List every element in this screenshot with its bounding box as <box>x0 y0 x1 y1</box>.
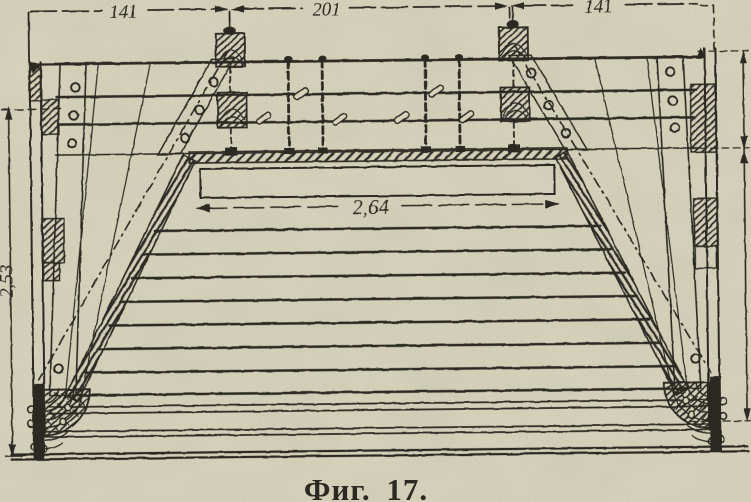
svg-text:141: 141 <box>109 2 138 23</box>
svg-text:Фиг. 17.: Фиг. 17. <box>304 472 428 502</box>
svg-text:2,64: 2,64 <box>352 195 390 219</box>
svg-text:2,53: 2,53 <box>0 264 18 297</box>
svg-text:141: 141 <box>584 0 613 18</box>
svg-text:201: 201 <box>312 0 341 21</box>
